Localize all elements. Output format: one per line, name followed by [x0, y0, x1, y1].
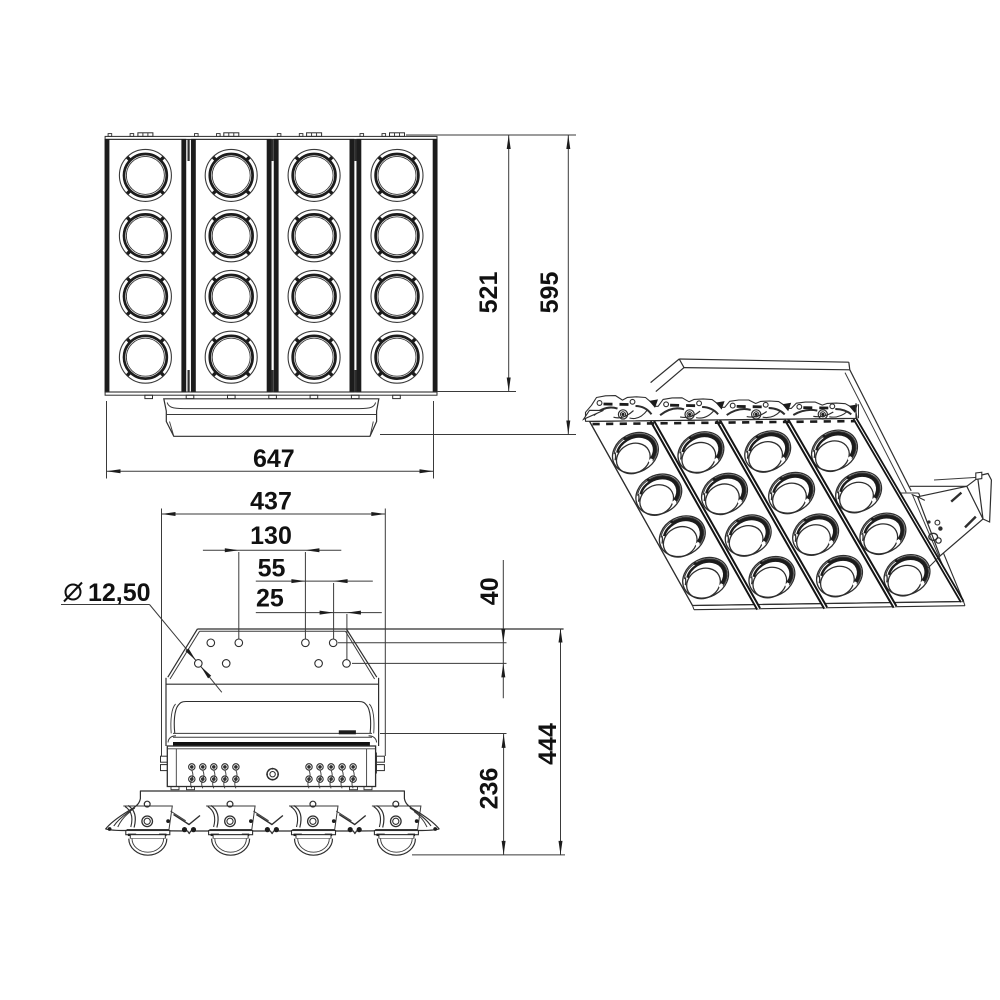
- svg-text:25: 25: [256, 585, 284, 613]
- svg-text:437: 437: [250, 488, 292, 516]
- svg-text:595: 595: [536, 272, 564, 314]
- svg-text:236: 236: [476, 768, 504, 810]
- svg-text:444: 444: [534, 723, 562, 765]
- svg-text:12,50: 12,50: [88, 579, 151, 607]
- svg-text:130: 130: [250, 522, 292, 550]
- svg-text:647: 647: [253, 445, 295, 473]
- svg-text:55: 55: [258, 555, 286, 583]
- svg-text:521: 521: [475, 272, 503, 314]
- svg-text:40: 40: [476, 577, 504, 605]
